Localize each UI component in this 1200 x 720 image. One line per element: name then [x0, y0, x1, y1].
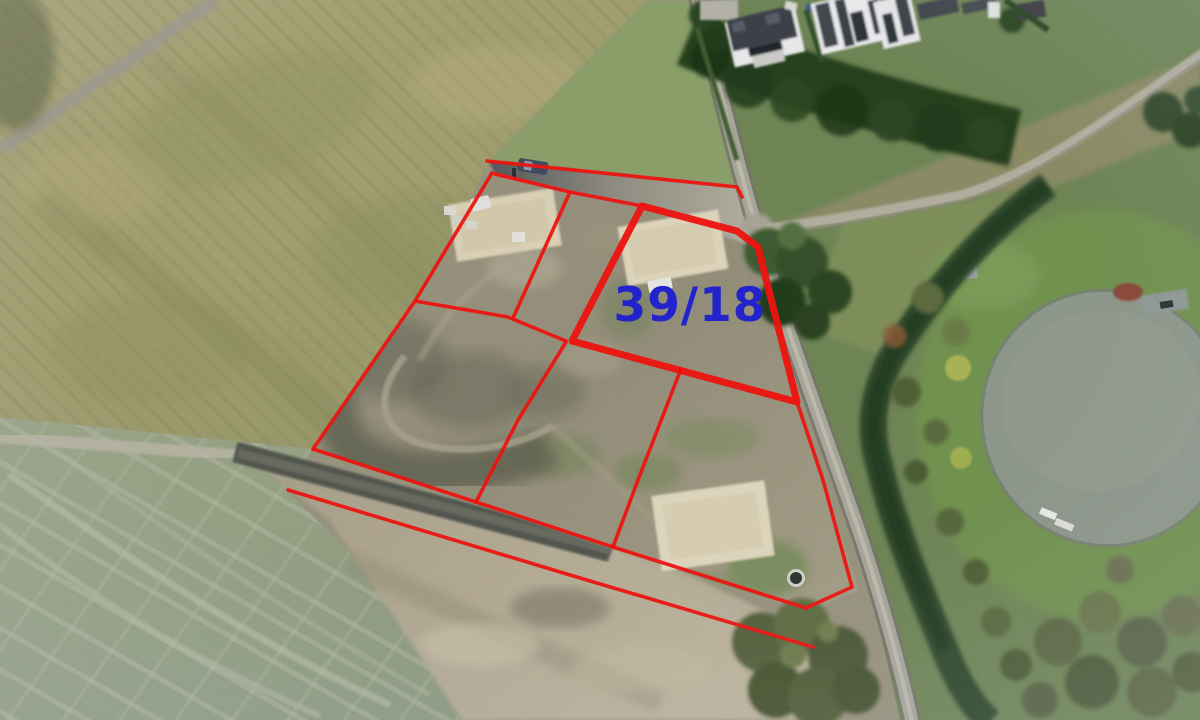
- atmospheric-haze: [0, 0, 1200, 720]
- aerial-photo: 39/18: [0, 0, 1200, 720]
